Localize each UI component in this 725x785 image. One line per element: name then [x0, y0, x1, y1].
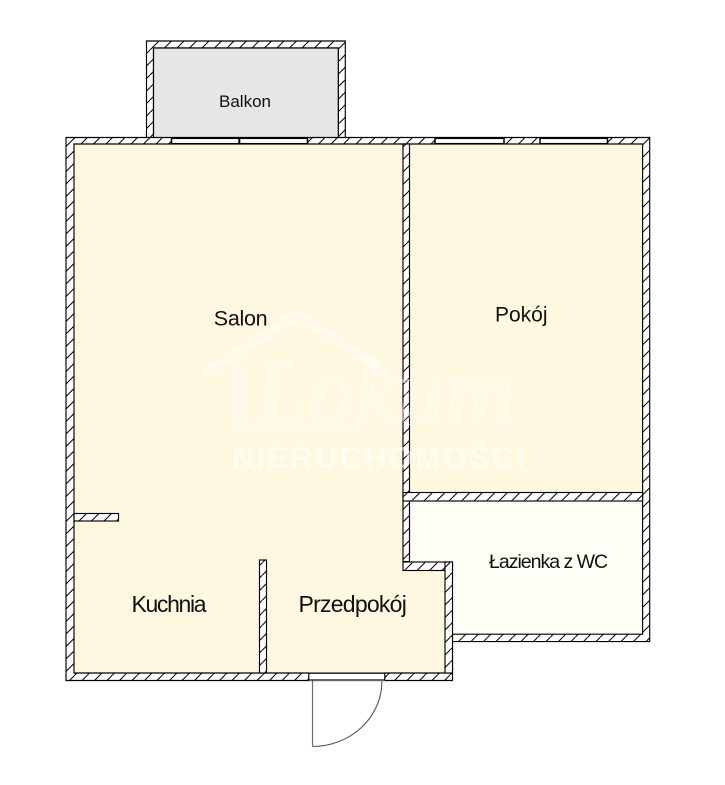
svg-text:Kuchnia: Kuchnia — [132, 591, 207, 617]
svg-text:Salon: Salon — [214, 306, 267, 330]
svg-text:Pokój: Pokój — [495, 303, 548, 326]
svg-text:Balkon: Balkon — [219, 92, 271, 111]
svg-text:NIERUCHOMOŚCI: NIERUCHOMOŚCI — [232, 439, 528, 475]
svg-text:Lokum: Lokum — [253, 339, 514, 445]
svg-text:Przedpokój: Przedpokój — [299, 591, 407, 617]
svg-text:Łazienka z WC: Łazienka z WC — [489, 551, 608, 573]
